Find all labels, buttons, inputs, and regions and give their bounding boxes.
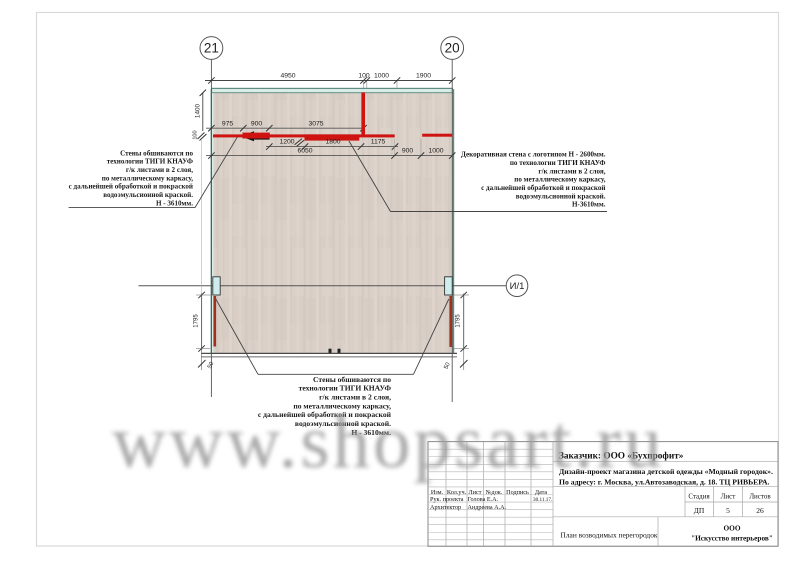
svg-text:Дата: Дата	[535, 489, 548, 496]
svg-text:Изм.: Изм.	[431, 489, 444, 496]
svg-text:по металлическому каркасу,: по металлическому каркасу,	[514, 176, 605, 184]
svg-text:20: 20	[445, 41, 460, 56]
svg-text:26: 26	[756, 506, 764, 515]
svg-text:Голова Е.А.: Голова Е.А.	[468, 496, 499, 503]
svg-text:1000: 1000	[428, 147, 443, 154]
svg-text:30.11.17.: 30.11.17.	[533, 497, 552, 503]
svg-text:Стадия: Стадия	[688, 493, 710, 501]
svg-text:Листов: Листов	[749, 493, 771, 501]
svg-text:Архитектор: Архитектор	[430, 504, 461, 511]
svg-text:975: 975	[222, 120, 234, 127]
svg-text:1795: 1795	[194, 314, 200, 328]
svg-text:900: 900	[251, 120, 263, 127]
svg-text:Кол.уч.: Кол.уч.	[447, 489, 467, 496]
svg-text:21: 21	[204, 41, 219, 56]
svg-text:1795: 1795	[456, 314, 462, 328]
svg-text:ДП: ДП	[694, 506, 705, 515]
svg-text:Н-3610мм.: Н-3610мм.	[572, 201, 606, 209]
svg-text:г/к листами в 2 слоя,: г/к листами в 2 слоя,	[126, 166, 193, 174]
svg-text:водоэмульсионной краской.: водоэмульсионной краской.	[516, 192, 606, 200]
svg-text:6050: 6050	[297, 147, 312, 154]
svg-text:5: 5	[726, 506, 730, 515]
svg-text:Стены обшиваются по: Стены обшиваются по	[120, 149, 193, 157]
svg-text:И/1: И/1	[510, 281, 525, 292]
svg-text:Декоративная стена с логотипом: Декоративная стена с логотипом Н - 2600м…	[461, 151, 606, 159]
svg-text:по металлическому каркасу,: по металлическому каркасу,	[102, 174, 193, 182]
svg-text:"Искусство интерьеров": "Искусство интерьеров"	[691, 534, 773, 543]
svg-text:Н - 3610мм.: Н - 3610мм.	[156, 199, 193, 207]
svg-text:Рук. проекта: Рук. проекта	[430, 496, 464, 503]
svg-text:1900: 1900	[416, 73, 431, 80]
svg-text:с дальнейшей обработкой и покр: с дальнейшей обработкой и покраской	[69, 183, 193, 191]
svg-text:1000: 1000	[374, 73, 389, 80]
svg-text:№док.: №док.	[486, 489, 503, 496]
svg-text:900: 900	[402, 147, 414, 154]
svg-text:ООО: ООО	[723, 524, 740, 533]
svg-text:водоэмульсионной краской.: водоэмульсионной краской.	[103, 191, 193, 199]
svg-text:Стены обшиваются по: Стены обшиваются по	[313, 375, 391, 384]
svg-text:Лист: Лист	[469, 489, 482, 496]
svg-text:Лист: Лист	[721, 493, 736, 501]
svg-text:с дальнейшей обработкой и покр: с дальнейшей обработкой и покраской	[481, 184, 605, 192]
svg-text:www.shopsart.ru: www.shopsart.ru	[112, 401, 665, 484]
svg-text:4950: 4950	[280, 73, 295, 80]
svg-text:План возводимых перегородок: План возводимых перегородок	[561, 531, 658, 540]
svg-text:1200: 1200	[279, 139, 294, 146]
svg-text:по технологии ТИГИ КНАУФ: по технологии ТИГИ КНАУФ	[510, 159, 606, 167]
svg-text:Андреева А.А.: Андреева А.А.	[468, 504, 507, 511]
svg-text:3075: 3075	[308, 120, 323, 127]
svg-text:Подпись: Подпись	[506, 489, 529, 496]
svg-text:1800: 1800	[325, 139, 340, 146]
svg-text:технологии ТИГИ КНАУФ: технологии ТИГИ КНАУФ	[107, 158, 193, 166]
svg-text:г/к листами в 2 слоя,: г/к листами в 2 слоя,	[538, 167, 605, 175]
svg-text:100: 100	[358, 73, 370, 80]
svg-text:1400: 1400	[194, 103, 201, 118]
svg-text:технологии ТИГИ КНАУФ: технологии ТИГИ КНАУФ	[299, 384, 392, 393]
svg-text:1175: 1175	[371, 139, 386, 146]
